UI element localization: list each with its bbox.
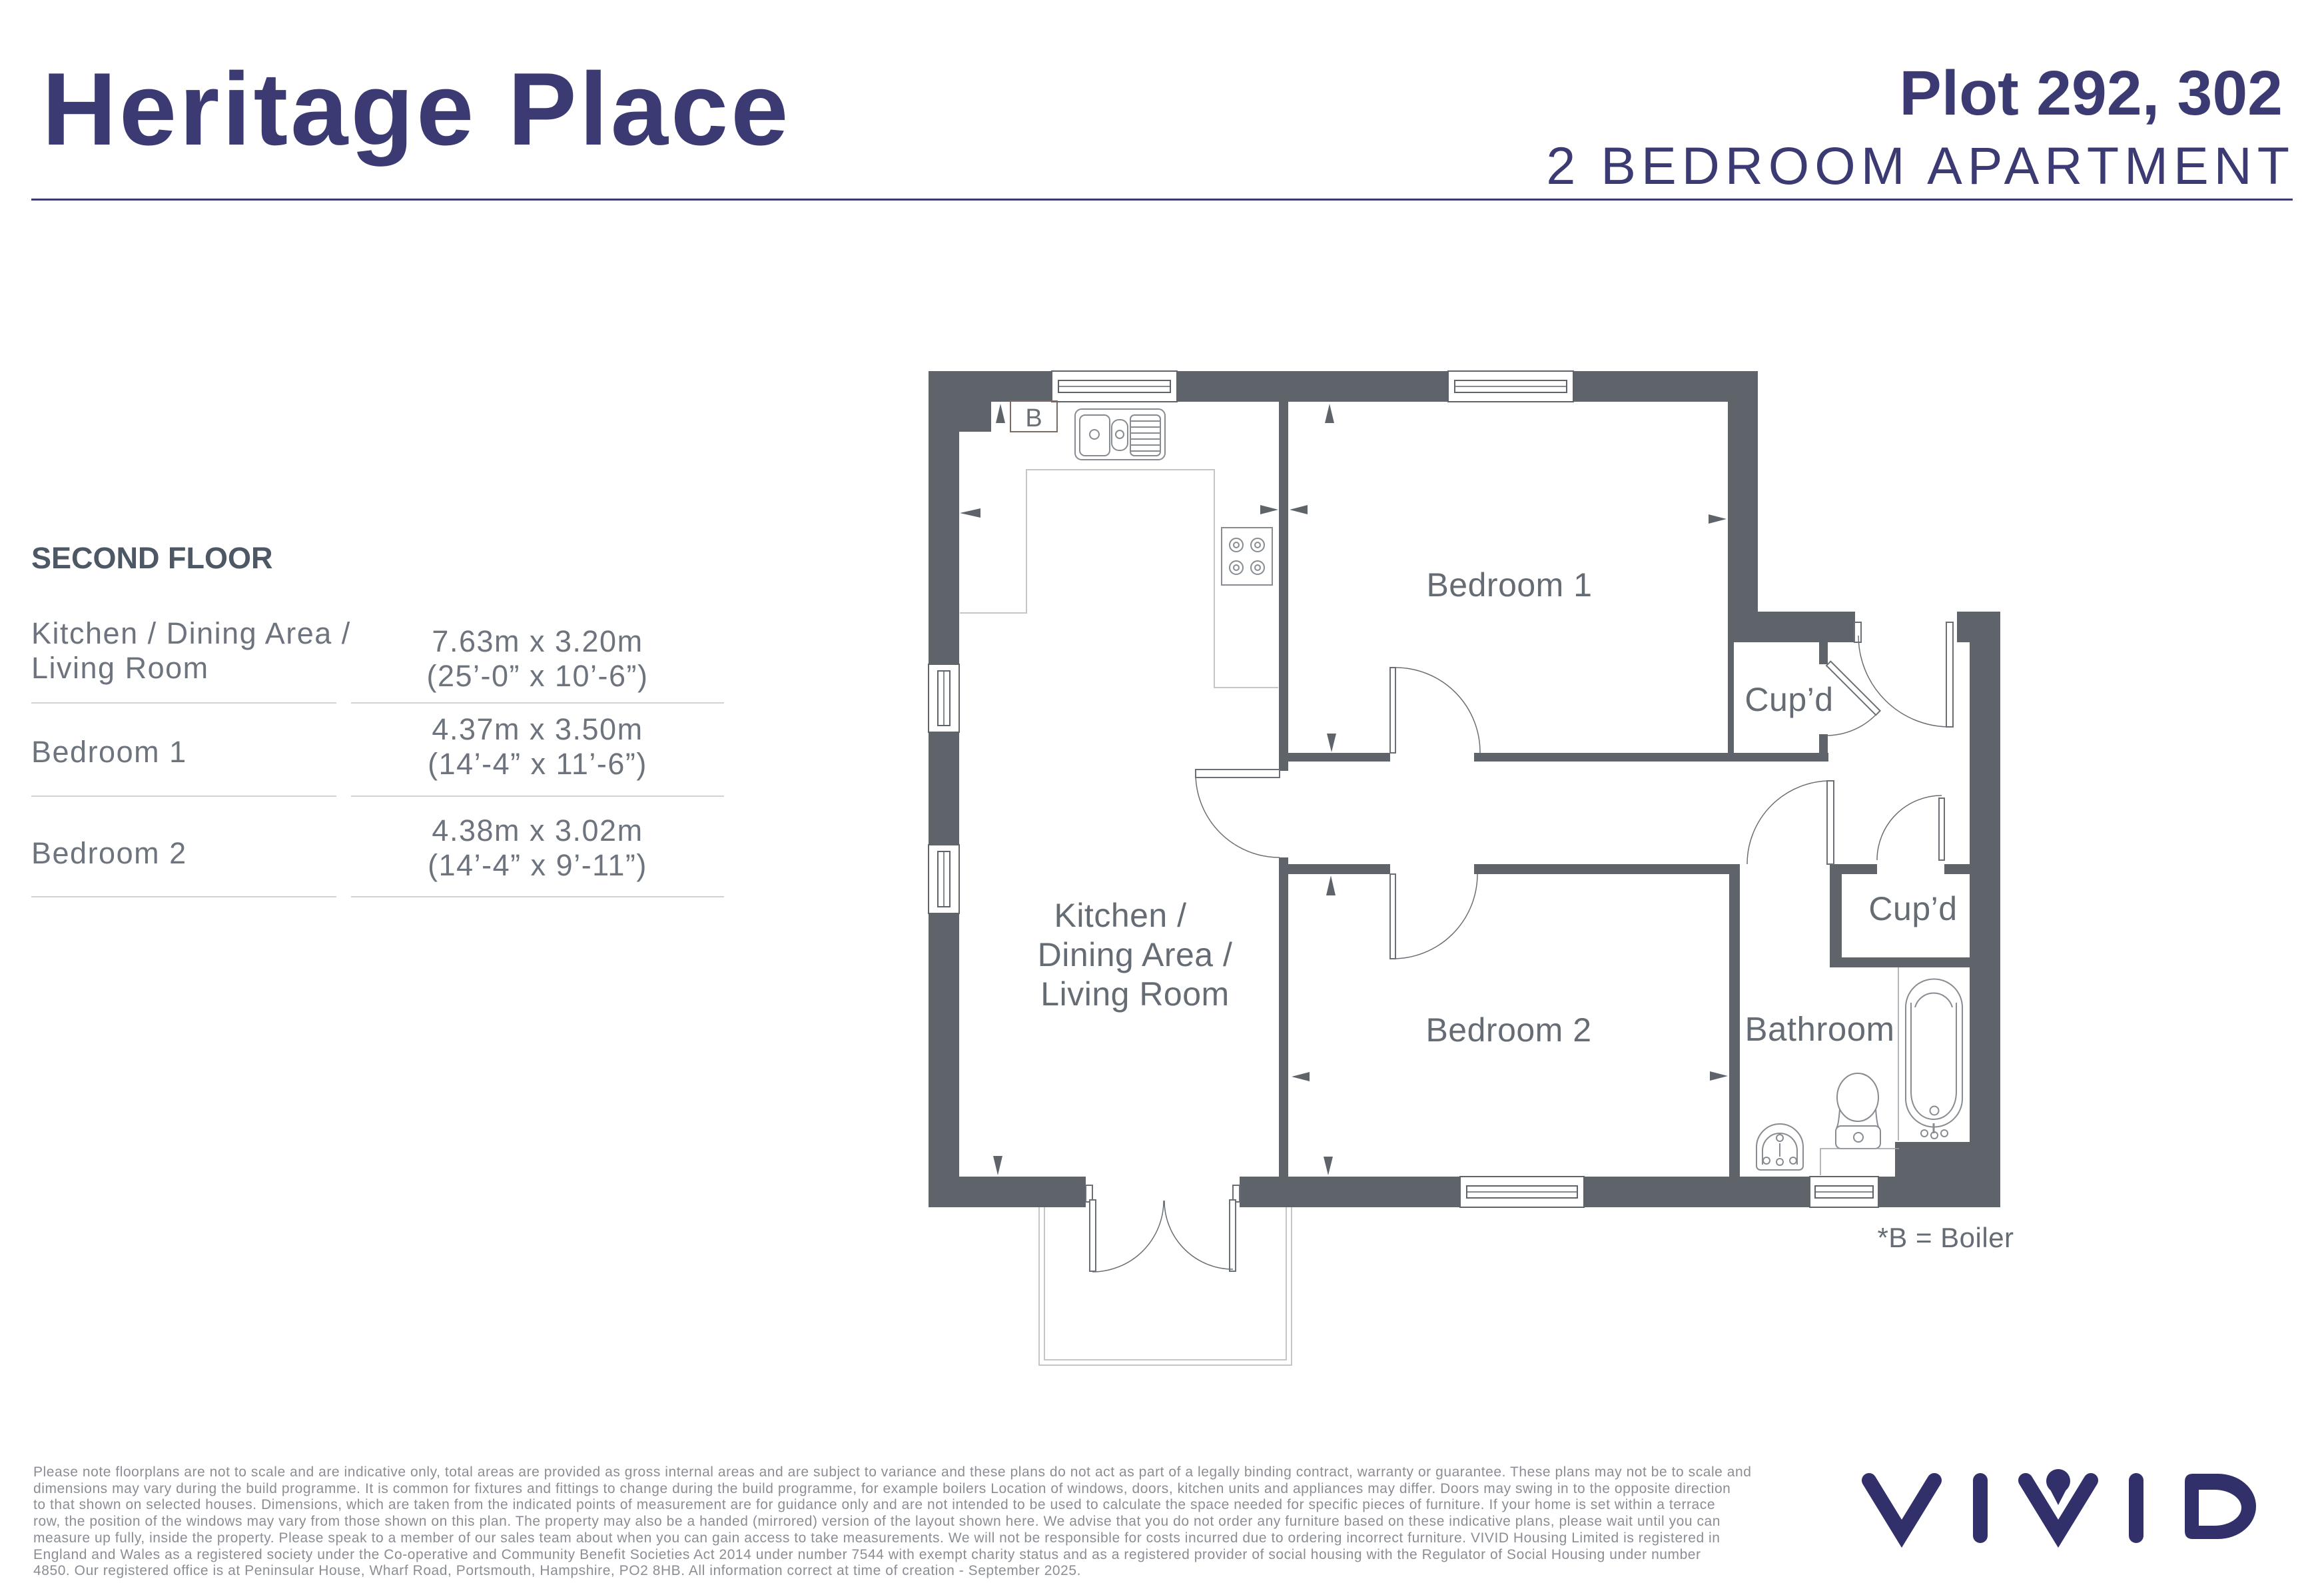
svg-text:Bedroom 2: Bedroom 2 bbox=[1425, 1011, 1591, 1049]
svg-text:*B = Boiler: *B = Boiler bbox=[1877, 1222, 2014, 1253]
svg-text:Dining Area /: Dining Area / bbox=[1038, 936, 1233, 973]
svg-text:Kitchen /: Kitchen / bbox=[1054, 897, 1186, 934]
svg-text:Bedroom 1: Bedroom 1 bbox=[1426, 566, 1592, 604]
svg-text:Bathroom: Bathroom bbox=[1744, 1010, 1894, 1048]
svg-text:B: B bbox=[1025, 404, 1042, 432]
svg-text:Cup’d: Cup’d bbox=[1868, 890, 1957, 927]
svg-text:Living Room: Living Room bbox=[1040, 975, 1229, 1013]
svg-text:Cup’d: Cup’d bbox=[1744, 681, 1833, 718]
